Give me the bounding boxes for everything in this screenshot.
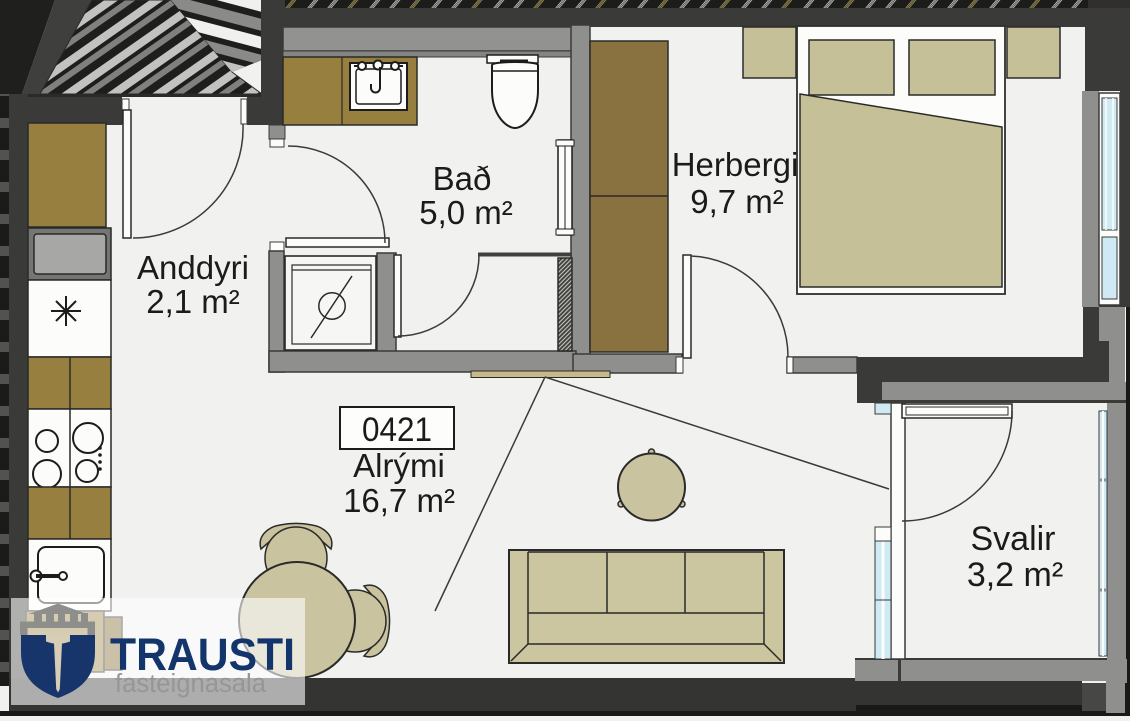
svg-text:Bað: Bað	[433, 160, 492, 197]
svg-text:Alrými: Alrými	[353, 447, 445, 484]
svg-text:Svalir: Svalir	[970, 520, 1055, 558]
svg-text:0421: 0421	[362, 411, 432, 449]
svg-text:2,1 m²: 2,1 m²	[146, 283, 240, 320]
svg-text:3,2 m²: 3,2 m²	[967, 556, 1063, 594]
svg-text:fasteignasala: fasteignasala	[115, 670, 267, 698]
svg-text:16,7 m²: 16,7 m²	[343, 482, 455, 519]
svg-text:Herbergi: Herbergi	[672, 146, 799, 183]
svg-text:9,7 m²: 9,7 m²	[690, 183, 784, 220]
svg-text:Anddyri: Anddyri	[137, 249, 249, 286]
svg-text:5,0 m²: 5,0 m²	[419, 194, 513, 231]
